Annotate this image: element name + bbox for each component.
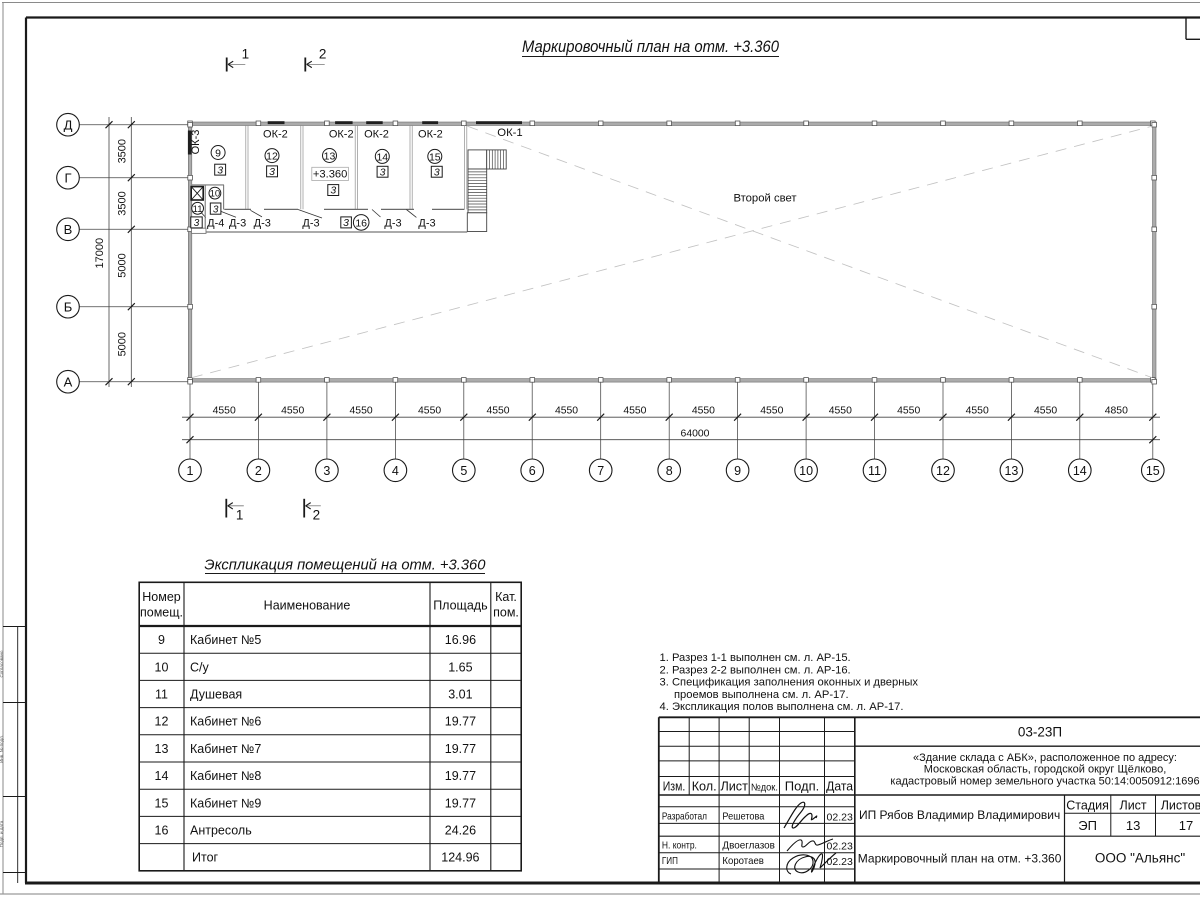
svg-text:10: 10 bbox=[799, 464, 813, 478]
svg-text:4550: 4550 bbox=[555, 406, 578, 417]
svg-text:4550: 4550 bbox=[213, 406, 236, 417]
svg-text:03-23П: 03-23П bbox=[1018, 725, 1062, 740]
svg-text:4550: 4550 bbox=[281, 406, 304, 417]
svg-text:ЭП: ЭП bbox=[1078, 818, 1097, 833]
svg-text:+3.360: +3.360 bbox=[313, 169, 348, 181]
svg-text:4: 4 bbox=[392, 464, 399, 478]
svg-text:3. Спецификация заполнения око: 3. Спецификация заполнения оконных и две… bbox=[660, 677, 919, 689]
svg-text:2: 2 bbox=[255, 464, 262, 478]
svg-text:Коротаев: Коротаев bbox=[722, 855, 764, 867]
svg-text:3: 3 bbox=[194, 218, 200, 229]
svg-text:5000: 5000 bbox=[117, 332, 129, 356]
svg-text:Наименование: Наименование bbox=[264, 599, 351, 613]
svg-text:1: 1 bbox=[236, 508, 244, 523]
svg-text:1. Разрез 1-1 выполнен см. л.: 1. Разрез 1-1 выполнен см. л. АР-15. bbox=[660, 652, 851, 664]
svg-text:Кабинет №5: Кабинет №5 bbox=[190, 633, 261, 647]
svg-text:ОК-1: ОК-1 bbox=[497, 127, 522, 139]
svg-text:3: 3 bbox=[217, 164, 223, 176]
svg-text:16.96: 16.96 bbox=[445, 633, 476, 647]
svg-text:4850: 4850 bbox=[1105, 406, 1128, 417]
svg-text:19.77: 19.77 bbox=[445, 796, 476, 810]
svg-text:3: 3 bbox=[269, 166, 275, 178]
svg-text:4550: 4550 bbox=[760, 406, 783, 417]
svg-text:12: 12 bbox=[936, 464, 950, 478]
svg-text:17: 17 bbox=[1179, 818, 1193, 833]
svg-text:1.65: 1.65 bbox=[448, 660, 472, 674]
svg-text:ОК-2: ОК-2 bbox=[329, 129, 354, 141]
svg-text:11: 11 bbox=[868, 464, 881, 478]
svg-text:№док.: №док. bbox=[751, 783, 778, 794]
svg-text:15: 15 bbox=[1146, 464, 1160, 478]
svg-text:4550: 4550 bbox=[623, 406, 646, 417]
svg-text:Н. контр.: Н. контр. bbox=[662, 840, 697, 852]
svg-text:Стадия: Стадия bbox=[1066, 799, 1109, 813]
svg-text:«Здание склада с АБК», располо: «Здание склада с АБК», расположенное по … bbox=[913, 752, 1177, 764]
svg-text:Второй свет: Второй свет bbox=[733, 193, 796, 205]
svg-text:Д-3: Д-3 bbox=[418, 217, 435, 229]
svg-text:3: 3 bbox=[434, 166, 440, 178]
svg-text:4. Экспликация полов выполнена: 4. Экспликация полов выполнена см. л. АР… bbox=[660, 701, 904, 713]
svg-text:11: 11 bbox=[193, 204, 203, 215]
svg-text:1: 1 bbox=[187, 464, 194, 478]
svg-text:проемов выполнена см. л. АР-17: проемов выполнена см. л. АР-17. bbox=[674, 689, 849, 701]
svg-text:3500: 3500 bbox=[117, 191, 129, 215]
svg-text:ОК-2: ОК-2 bbox=[263, 129, 288, 141]
svg-text:19.77: 19.77 bbox=[445, 769, 476, 783]
svg-text:Г: Г bbox=[64, 170, 71, 185]
svg-text:15: 15 bbox=[429, 151, 441, 163]
svg-text:2: 2 bbox=[313, 508, 321, 523]
svg-text:Дата: Дата bbox=[826, 779, 854, 794]
svg-text:3: 3 bbox=[323, 464, 330, 478]
svg-text:помещ.: помещ. bbox=[140, 606, 183, 620]
svg-text:12: 12 bbox=[155, 715, 169, 729]
svg-text:64000: 64000 bbox=[681, 428, 710, 439]
svg-text:13: 13 bbox=[155, 742, 169, 756]
svg-text:15: 15 bbox=[155, 796, 169, 810]
svg-text:12: 12 bbox=[266, 151, 278, 163]
svg-text:Лист: Лист bbox=[1120, 799, 1147, 813]
svg-text:Д-4: Д-4 bbox=[207, 217, 224, 229]
svg-text:4550: 4550 bbox=[897, 406, 920, 417]
svg-text:Маркировочный план на отм. +3.: Маркировочный план на отм. +3.360 bbox=[522, 38, 780, 56]
svg-text:3: 3 bbox=[380, 166, 386, 178]
svg-text:Маркировочный план на отм. +3.: Маркировочный план на отм. +3.360 bbox=[858, 852, 1062, 866]
svg-text:16: 16 bbox=[355, 217, 367, 229]
svg-text:Кабинет №9: Кабинет №9 bbox=[190, 796, 261, 810]
svg-text:3.01: 3.01 bbox=[448, 688, 472, 702]
svg-text:17000: 17000 bbox=[94, 238, 106, 269]
svg-text:13: 13 bbox=[324, 150, 336, 162]
svg-text:С/у: С/у bbox=[190, 660, 210, 674]
svg-text:14: 14 bbox=[1073, 464, 1087, 478]
svg-text:4550: 4550 bbox=[692, 406, 715, 417]
svg-text:4550: 4550 bbox=[829, 406, 852, 417]
svg-text:ОК-2: ОК-2 bbox=[364, 129, 389, 141]
svg-text:2: 2 bbox=[319, 47, 327, 62]
svg-text:Изм.: Изм. bbox=[663, 779, 686, 794]
svg-text:5000: 5000 bbox=[117, 253, 129, 277]
svg-text:1: 1 bbox=[242, 47, 250, 62]
svg-text:ОК-2: ОК-2 bbox=[418, 129, 443, 141]
svg-text:14: 14 bbox=[376, 151, 388, 163]
svg-text:16: 16 bbox=[155, 824, 169, 838]
svg-text:Д-3: Д-3 bbox=[384, 217, 401, 229]
svg-text:124.96: 124.96 bbox=[441, 851, 479, 865]
svg-text:Экспликация помещений на отм.: Экспликация помещений на отм. +3.360 bbox=[204, 557, 486, 574]
svg-text:Двоеглазов: Двоеглазов bbox=[722, 840, 775, 852]
svg-text:Разработал: Разработал bbox=[662, 811, 707, 823]
svg-text:В: В bbox=[64, 222, 73, 237]
svg-text:14: 14 bbox=[155, 769, 169, 783]
svg-text:кадастровый номер земельного у: кадастровый номер земельного участка 50:… bbox=[890, 775, 1199, 787]
svg-text:4550: 4550 bbox=[966, 406, 989, 417]
svg-text:3: 3 bbox=[330, 185, 336, 197]
svg-text:А: А bbox=[64, 374, 73, 389]
svg-text:Решетова: Решетова bbox=[722, 811, 764, 823]
svg-text:Д: Д bbox=[64, 117, 73, 132]
svg-text:10: 10 bbox=[210, 189, 221, 200]
svg-text:ОК-3: ОК-3 bbox=[190, 130, 202, 155]
svg-text:Московская область, городской: Московская область, городской округ Щёлк… bbox=[924, 764, 1167, 776]
svg-text:Лист: Лист bbox=[720, 779, 748, 794]
svg-text:Кол.: Кол. bbox=[692, 779, 717, 794]
svg-text:Согласовано: Согласовано bbox=[0, 650, 4, 678]
svg-text:24.26: 24.26 bbox=[445, 824, 476, 838]
svg-text:4550: 4550 bbox=[1034, 406, 1057, 417]
svg-text:7: 7 bbox=[597, 464, 604, 478]
svg-text:9: 9 bbox=[215, 147, 221, 159]
svg-text:4550: 4550 bbox=[350, 406, 373, 417]
svg-text:Листов: Листов bbox=[1161, 799, 1200, 813]
svg-text:3: 3 bbox=[343, 217, 349, 229]
svg-text:4550: 4550 bbox=[486, 406, 509, 417]
svg-text:13: 13 bbox=[1126, 818, 1140, 833]
svg-text:Кабинет №7: Кабинет №7 bbox=[190, 742, 261, 756]
svg-text:5: 5 bbox=[460, 464, 467, 478]
svg-text:Итог: Итог bbox=[192, 851, 219, 865]
svg-text:Антресоль: Антресоль bbox=[190, 824, 252, 838]
svg-text:19.77: 19.77 bbox=[445, 742, 476, 756]
svg-text:Номер: Номер bbox=[142, 590, 181, 604]
svg-text:Кат.: Кат. bbox=[495, 590, 517, 604]
svg-text:Д-3: Д-3 bbox=[302, 217, 319, 229]
svg-text:Подп. и дата: Подп. и дата bbox=[0, 820, 4, 847]
svg-text:пом.: пом. bbox=[493, 606, 519, 620]
svg-text:Душевая: Душевая bbox=[190, 688, 242, 702]
svg-text:3500: 3500 bbox=[117, 139, 129, 163]
svg-text:3: 3 bbox=[213, 204, 219, 215]
svg-text:13: 13 bbox=[1004, 464, 1018, 478]
svg-text:11: 11 bbox=[155, 688, 168, 702]
svg-text:Площадь: Площадь bbox=[433, 599, 487, 613]
svg-text:10: 10 bbox=[155, 660, 169, 674]
svg-text:4550: 4550 bbox=[418, 406, 441, 417]
svg-text:19.77: 19.77 bbox=[445, 715, 476, 729]
svg-text:Б: Б bbox=[64, 299, 73, 314]
svg-text:02.23: 02.23 bbox=[827, 812, 853, 824]
svg-text:Д-3: Д-3 bbox=[254, 217, 271, 229]
svg-text:6: 6 bbox=[529, 464, 536, 478]
svg-text:8: 8 bbox=[666, 464, 673, 478]
svg-text:ООО "Альянс": ООО "Альянс" bbox=[1095, 851, 1185, 866]
svg-text:9: 9 bbox=[158, 633, 165, 647]
svg-text:2. Разрез 2-2 выполнен см. л.: 2. Разрез 2-2 выполнен см. л. АР-16. bbox=[660, 664, 851, 676]
svg-text:02.23: 02.23 bbox=[827, 841, 853, 853]
svg-text:9: 9 bbox=[734, 464, 741, 478]
svg-text:ГИП: ГИП bbox=[662, 855, 678, 867]
svg-text:ИП Рябов Владимир Владимирович: ИП Рябов Владимир Владимирович bbox=[859, 808, 1060, 822]
svg-text:Инв. № подл.: Инв. № подл. bbox=[0, 735, 4, 763]
svg-text:Кабинет №8: Кабинет №8 bbox=[190, 769, 261, 783]
svg-text:Д-3: Д-3 bbox=[229, 217, 246, 229]
svg-text:Подп.: Подп. bbox=[785, 779, 820, 794]
svg-text:Кабинет №6: Кабинет №6 bbox=[190, 715, 261, 729]
